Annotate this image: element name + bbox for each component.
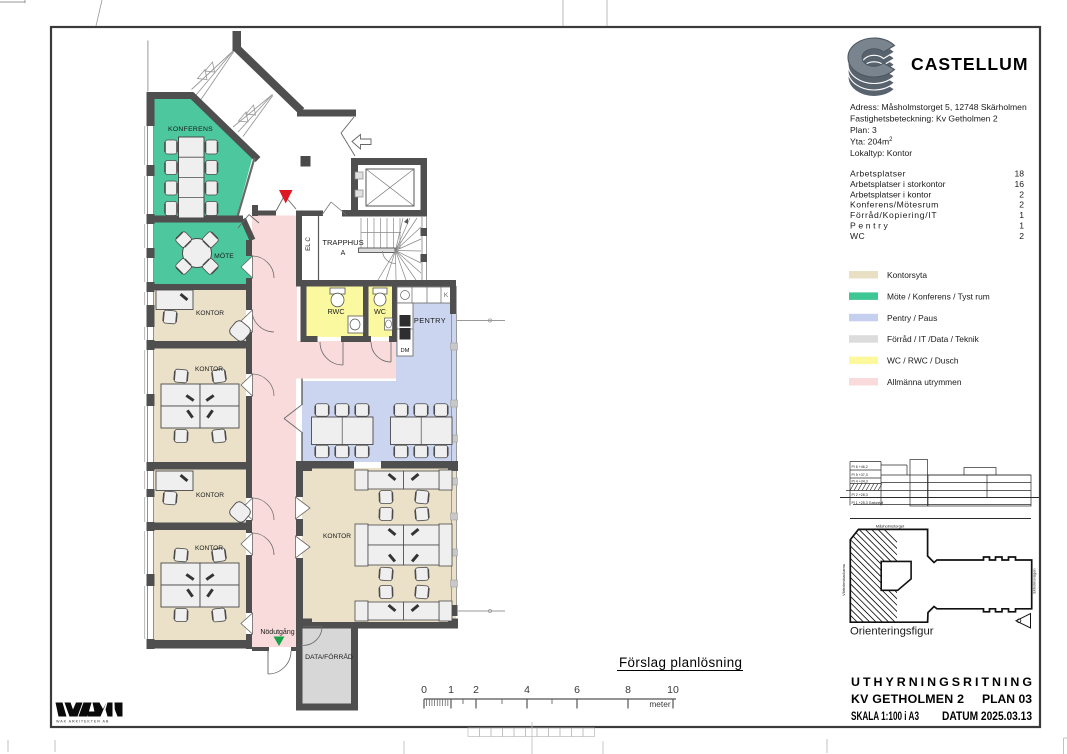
svg-text:Ekholmsvägen: Ekholmsvägen bbox=[1033, 569, 1037, 594]
svg-text:Förslag planlösning: Förslag planlösning bbox=[619, 655, 742, 670]
svg-text:4: 4 bbox=[524, 684, 530, 696]
svg-text:WC / RWC / Dusch: WC / RWC / Dusch bbox=[887, 356, 959, 366]
svg-text:Orienteringsfigur: Orienteringsfigur bbox=[850, 626, 934, 638]
svg-text:Allmänna utrymmen: Allmänna utrymmen bbox=[887, 377, 962, 387]
svg-text:16: 16 bbox=[1014, 179, 1024, 189]
svg-text:TRAPPHUS: TRAPPHUS bbox=[322, 238, 363, 247]
svg-text:Fastighetsbeteckning: Kv Getho: Fastighetsbeteckning: Kv Getholmen 2 bbox=[850, 114, 998, 124]
svg-text:Måsholmstorget: Måsholmstorget bbox=[876, 524, 905, 529]
svg-text:K: K bbox=[444, 292, 449, 299]
svg-text:Vårholmsbackarna: Vårholmsbackarna bbox=[842, 563, 846, 596]
svg-text:PENTRY: PENTRY bbox=[414, 316, 446, 325]
svg-text:Pentry: Pentry bbox=[850, 221, 890, 231]
svg-text:Arbetsplatser i storkontor: Arbetsplatser i storkontor bbox=[850, 179, 946, 189]
svg-text:Plan: 3: Plan: 3 bbox=[850, 125, 877, 135]
svg-text:1: 1 bbox=[1019, 210, 1024, 220]
svg-text:DATUM 2025.03.13: DATUM 2025.03.13 bbox=[942, 709, 1032, 723]
svg-text:MÖTE: MÖTE bbox=[214, 252, 234, 260]
svg-text:Pentry / Paus: Pentry / Paus bbox=[887, 313, 937, 323]
svg-text:1: 1 bbox=[448, 684, 454, 696]
svg-text:KONTOR: KONTOR bbox=[195, 366, 223, 373]
svg-text:10: 10 bbox=[667, 684, 679, 696]
svg-text:EL C: EL C bbox=[305, 237, 312, 251]
svg-text:Pl 2 +28,3: Pl 2 +28,3 bbox=[852, 493, 868, 497]
svg-text:2: 2 bbox=[1019, 200, 1024, 210]
svg-text:6: 6 bbox=[574, 684, 580, 696]
svg-text:Nödutgång: Nödutgång bbox=[260, 628, 294, 636]
svg-text:Yta: 204m2: Yta: 204m2 bbox=[850, 137, 893, 147]
svg-text:Pl 5 +37,3: Pl 5 +37,3 bbox=[852, 473, 868, 477]
svg-text:SKALA 1:100 i A3: SKALA 1:100 i A3 bbox=[851, 709, 919, 723]
svg-text:Pl 4 +34,3: Pl 4 +34,3 bbox=[852, 480, 868, 484]
svg-text:PLAN 03: PLAN 03 bbox=[982, 692, 1032, 706]
svg-text:0: 0 bbox=[421, 684, 427, 696]
svg-text:RWC: RWC bbox=[327, 307, 344, 316]
svg-text:KONTOR: KONTOR bbox=[196, 310, 224, 317]
svg-text:WC: WC bbox=[374, 307, 386, 316]
svg-text:KV GETHOLMEN 2: KV GETHOLMEN 2 bbox=[851, 692, 964, 706]
svg-text:DATA/FÖRRÅD: DATA/FÖRRÅD bbox=[305, 652, 353, 661]
svg-text:UTHYRNINGSRITNING: UTHYRNINGSRITNING bbox=[851, 675, 1032, 689]
svg-text:KONTOR: KONTOR bbox=[195, 545, 223, 552]
svg-text:Adress: Måsholmstorget 5, 1274: Adress: Måsholmstorget 5, 12748 Skärholm… bbox=[850, 102, 1027, 112]
svg-text:Arbetsplatser: Arbetsplatser bbox=[850, 169, 906, 179]
svg-text:WC: WC bbox=[850, 231, 865, 241]
svg-text:2: 2 bbox=[1019, 231, 1024, 241]
svg-text:KONTOR: KONTOR bbox=[323, 533, 351, 540]
svg-text:Kontorsyta: Kontorsyta bbox=[887, 270, 927, 280]
svg-text:Arbetsplatser i kontor: Arbetsplatser i kontor bbox=[850, 189, 931, 199]
svg-text:A: A bbox=[341, 250, 346, 257]
svg-text:8: 8 bbox=[625, 684, 631, 696]
svg-text:Pl 6 +46,2: Pl 6 +46,2 bbox=[852, 465, 868, 469]
svg-text:Förråd / IT /Data / Teknik: Förråd / IT /Data / Teknik bbox=[887, 334, 980, 344]
svg-text:Konferens/Mötesrum: Konferens/Mötesrum bbox=[850, 200, 939, 210]
svg-text:Möte / Konferens / Tyst rum: Möte / Konferens / Tyst rum bbox=[887, 291, 990, 301]
svg-text:WAK ARKITEKTER AB: WAK ARKITEKTER AB bbox=[56, 720, 109, 724]
svg-text:KONFERENS: KONFERENS bbox=[168, 126, 213, 133]
svg-text:18: 18 bbox=[1014, 169, 1024, 179]
svg-text:Lokaltyp: Kontor: Lokaltyp: Kontor bbox=[850, 148, 912, 158]
svg-text:1: 1 bbox=[1019, 221, 1024, 231]
svg-text:meter: meter bbox=[649, 699, 670, 709]
svg-text:CASTELLUM: CASTELLUM bbox=[911, 54, 1028, 74]
svg-text:DM: DM bbox=[400, 348, 409, 354]
svg-text:2: 2 bbox=[1019, 189, 1024, 199]
svg-text:KONTOR: KONTOR bbox=[196, 492, 224, 499]
svg-text:Förråd/Kopiering/IT: Förråd/Kopiering/IT bbox=[850, 210, 937, 220]
svg-text:2: 2 bbox=[473, 684, 479, 696]
